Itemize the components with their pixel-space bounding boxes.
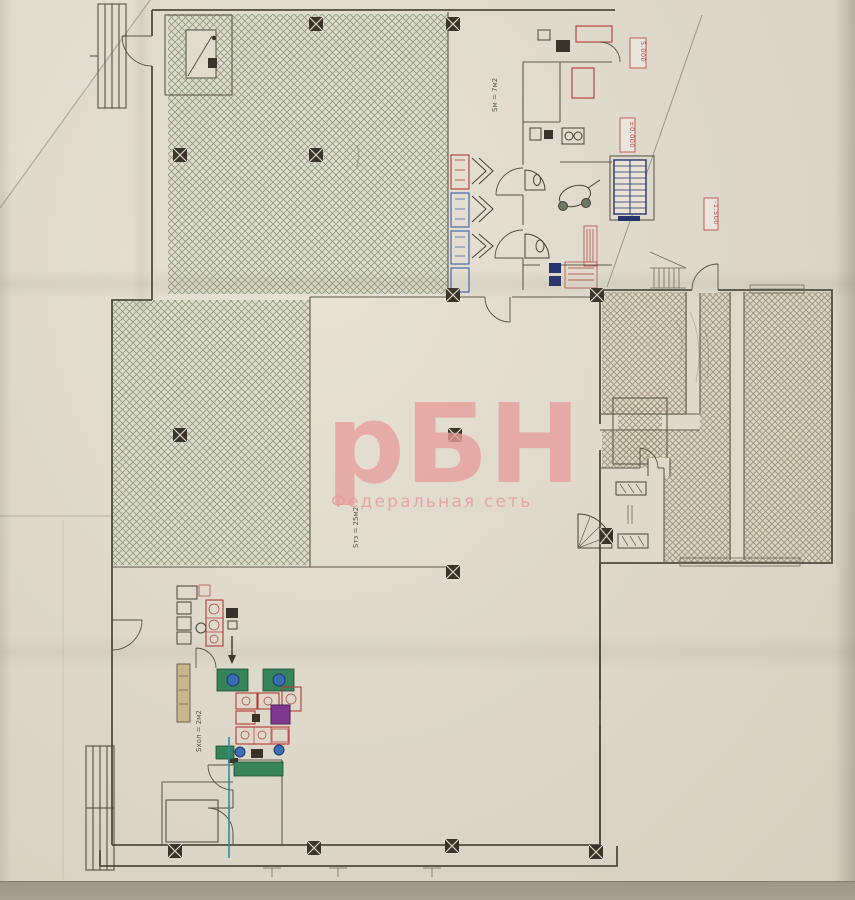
checkout-counters bbox=[451, 155, 493, 292]
elevation-label-top: 5.000 bbox=[639, 41, 647, 62]
entrance-steps bbox=[650, 252, 686, 288]
elevation-label-mid: ±0.000 bbox=[628, 121, 636, 148]
blue-staircase-icon bbox=[614, 160, 646, 221]
area-label-hall: Sтз = 25м2 bbox=[352, 507, 360, 548]
area-label-cold: Sхол = 2м2 bbox=[195, 710, 203, 752]
pallet-truck-icon bbox=[557, 180, 600, 211]
floor-plan-drawing: 5.000 ±0.000 -1.500 Sм = 7м2 Sтз = 25м2 … bbox=[0, 0, 855, 900]
elevation-label-right: -1.500 bbox=[712, 201, 720, 225]
watermark: рБН Федеральная сеть bbox=[326, 380, 581, 512]
backroom-equipment bbox=[525, 26, 620, 288]
scanned-floor-plan: 5.000 ±0.000 -1.500 Sм = 7м2 Sтз = 25м2 … bbox=[0, 0, 855, 900]
table-background bbox=[0, 881, 855, 900]
watermark-logo: рБН bbox=[326, 380, 581, 508]
queue-zigzag-icon bbox=[472, 158, 493, 258]
cold-room bbox=[166, 800, 218, 842]
storage-area-hatch bbox=[601, 292, 832, 563]
survey-marks bbox=[263, 868, 441, 877]
area-label-top: Sм = 7м2 bbox=[491, 78, 499, 112]
ramp-bottom-left bbox=[86, 746, 114, 870]
watermark-subtitle: Федеральная сеть bbox=[331, 492, 533, 512]
